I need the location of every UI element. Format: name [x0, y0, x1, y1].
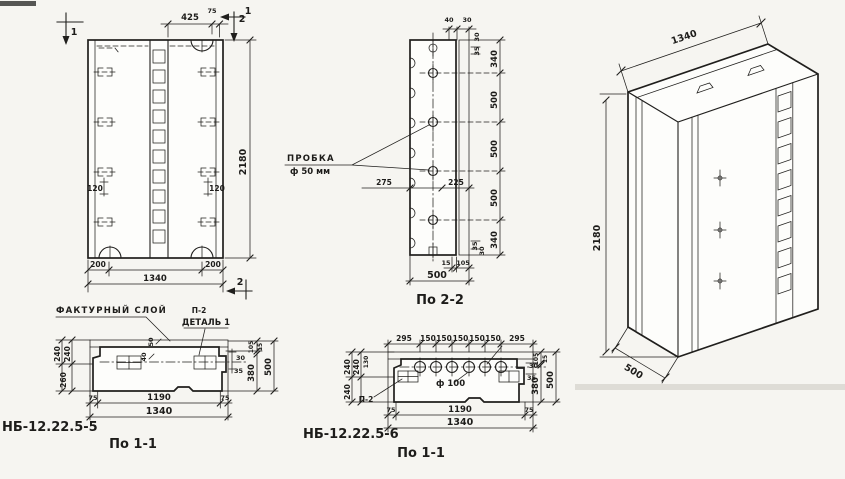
chain-500-b: 500 — [490, 140, 500, 158]
facade-layer-strip — [388, 352, 533, 359]
drawing-canvas: 120 120 425 75 1 1 2 2 2180 — [0, 0, 845, 479]
chain-340-top: 340 — [490, 50, 500, 68]
callout-detail: ДЕТАЛЬ 1 — [182, 318, 230, 328]
dim-40: 40 — [444, 16, 454, 24]
dim-30-top: 30 — [462, 16, 472, 24]
dim-240-b: 240 — [352, 359, 361, 375]
dim-380: 380 — [247, 364, 257, 382]
top-chain-295-right: 295 — [509, 334, 525, 343]
dim-15: 15 — [441, 259, 451, 267]
dim-height: 2180 — [238, 148, 249, 175]
section-caption: По 1-1 — [109, 437, 157, 452]
dim-edge-left: 200 — [90, 260, 106, 269]
dim-40: 40 — [140, 352, 148, 362]
scan-band — [575, 384, 845, 390]
dim-total-width: 1340 — [143, 274, 167, 284]
dim-130: 130 — [363, 356, 370, 369]
part-number-label: НБ-12.22.5-6 — [303, 427, 399, 442]
dim-105: 105 — [456, 259, 470, 267]
top-chain-150-c: 150 — [453, 334, 469, 343]
dim-top-width: 425 — [181, 13, 199, 23]
dim-500: 500 — [546, 371, 556, 389]
callout-p2: П-2 — [192, 306, 207, 315]
dim-240-c: 240 — [343, 384, 352, 400]
dim-loop-left: 120 — [87, 184, 103, 193]
callout-plug: ПРОБКА — [287, 154, 335, 164]
dim-1340: 1340 — [447, 417, 474, 428]
section-caption: По 1-1 — [397, 446, 445, 461]
dim-105: 105 — [533, 353, 540, 366]
marker-1-label: 1 — [71, 27, 78, 38]
part-number-label: НБ-12.22.5-5 — [2, 420, 98, 435]
section-1-1-left-view: ФАКТУРНЫЙ СЛОЙ П-2 ДЕТАЛЬ 1 50 40 240 24… — [2, 304, 278, 452]
dim-35: 35 — [234, 367, 244, 375]
callout-dia: ф 100 — [436, 379, 465, 389]
dim-75-left: 75 — [88, 394, 98, 402]
scan-smudge — [0, 1, 36, 6]
dim-260: 260 — [59, 372, 68, 388]
dim-30: 30 — [236, 354, 246, 362]
dim-75-right: 75 — [220, 394, 230, 402]
dim-1190: 1190 — [147, 393, 171, 403]
front-elevation-view: 120 120 425 75 1 1 2 2 2180 — [57, 6, 256, 299]
top-chain-150-b: 150 — [436, 334, 452, 343]
chain-500-c: 500 — [490, 189, 500, 207]
dim-500: 500 — [264, 358, 274, 376]
marker-2-label: 2 — [239, 14, 246, 25]
scanned-technical-drawing: 120 120 425 75 1 1 2 2 2180 — [0, 0, 845, 479]
dim-225: 225 — [448, 178, 464, 187]
dim-240-a: 240 — [53, 346, 62, 362]
dim-edge-right: 200 — [205, 260, 221, 269]
dim-50: 50 — [147, 337, 155, 347]
dim-75-right: 75 — [524, 406, 534, 414]
dim-105: 105 — [248, 341, 255, 354]
dim-75-left: 75 — [386, 406, 396, 414]
dim-380: 380 — [531, 377, 541, 395]
dim-275: 275 — [376, 178, 392, 187]
dim-15: 15 — [257, 343, 264, 351]
dim-depth-3d: 500 — [622, 362, 645, 382]
section-1-1-right-view: 295 150 150 150 150 150 295 ф 100 П-2 24… — [303, 334, 560, 461]
dim-width-3d: 1340 — [670, 28, 699, 47]
chain-340-bottom: 340 — [490, 231, 500, 249]
dim-1190: 1190 — [448, 405, 472, 415]
callout-facade-layer: ФАКТУРНЫЙ СЛОЙ — [56, 304, 167, 316]
dim-height-3d: 2180 — [592, 224, 603, 251]
callout-plug-dia: ф 50 мм — [290, 167, 330, 177]
top-chain-150-a: 150 — [420, 334, 436, 343]
dim-top-offset: 75 — [207, 7, 217, 15]
dim-loop-right: 120 — [209, 184, 225, 193]
marker-1-label: 1 — [245, 6, 252, 17]
section-caption: По 2-2 — [416, 293, 464, 308]
section-marker-1-right: 1 — [220, 6, 251, 21]
top-chain-150-d: 150 — [469, 334, 485, 343]
section-marker-2-bottom: 2 — [226, 277, 252, 299]
top-chain-150-e: 150 — [485, 334, 501, 343]
dim-240-b: 240 — [63, 346, 72, 362]
chain-500-a: 500 — [490, 91, 500, 109]
dim-30-right-bottom: 30 — [478, 246, 486, 256]
dim-240-a: 240 — [343, 359, 352, 375]
marker-2-label: 2 — [237, 277, 244, 288]
dim-15: 15 — [542, 355, 549, 363]
section-marker-1-left: 1 — [57, 13, 83, 45]
facade-layer-strip — [459, 40, 469, 255]
isometric-view: 1340 2180 500 — [592, 16, 818, 383]
top-chain-295-left: 295 — [396, 334, 412, 343]
section-2-2-view: 40 30 30 35 340 500 500 500 340 35 30 27… — [285, 16, 505, 308]
dim-1340: 1340 — [146, 406, 173, 417]
dim-500: 500 — [427, 270, 447, 281]
dim-35-right-top: 35 — [473, 46, 481, 56]
